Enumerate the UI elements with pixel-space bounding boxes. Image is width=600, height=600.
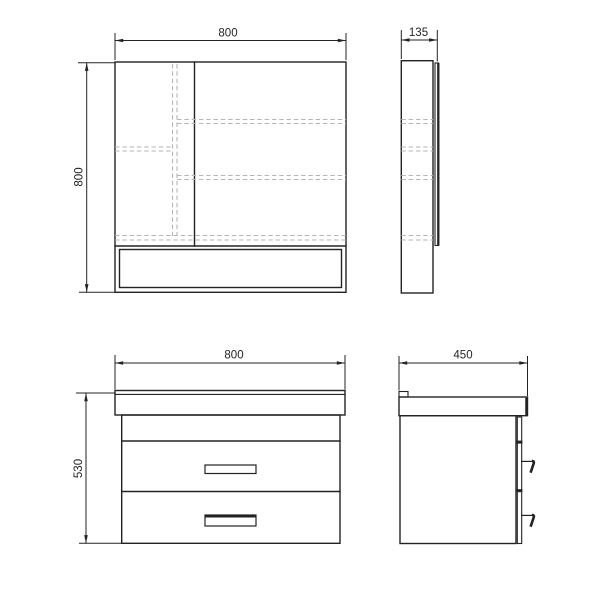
vanity-front-view: 800 530 [73, 350, 345, 544]
vanity-side-body-outline [400, 416, 516, 544]
drawer-front-strip [517, 417, 521, 544]
mirror-cabinet-front-view: 800 800 [74, 28, 347, 293]
vanity-depth-label: 450 [453, 350, 472, 362]
drawer-joint-mark [517, 441, 523, 444]
mirror-width-dimension: 800 [115, 28, 346, 61]
drawer-handle-top [205, 465, 256, 474]
mirror-width-label: 800 [218, 28, 237, 40]
vanity-height-dimension: 530 [73, 393, 121, 543]
cabinet-technical-drawing: 800 800 135 [0, 0, 600, 600]
open-shelf-niche [120, 250, 342, 288]
handle-hook [531, 515, 534, 527]
handle-hook [531, 461, 534, 473]
vanity-body-outline [122, 415, 340, 543]
drawing-svg: 800 800 135 [0, 0, 600, 600]
side-handle-bottom [522, 515, 534, 527]
side-handle-top [522, 461, 534, 473]
mirror-cabinet-side-view: 135 [401, 27, 438, 293]
countertop-side [399, 397, 528, 416]
vanity-width-label: 800 [224, 350, 243, 362]
vanity-side-view: 450 [399, 350, 534, 544]
mirror-cabinet-outline [115, 62, 346, 292]
mirror-height-label: 800 [74, 167, 86, 186]
mirror-depth-label: 135 [409, 27, 428, 39]
vanity-depth-dimension: 450 [399, 350, 528, 397]
mirror-depth-dimension: 135 [401, 27, 437, 62]
mirror-side-body-outline [401, 61, 433, 293]
countertop-back-lip [399, 392, 408, 398]
vanity-height-label: 530 [73, 459, 85, 478]
vanity-width-dimension: 800 [115, 350, 345, 390]
mirror-height-dimension: 800 [74, 63, 116, 293]
drawer-joint-mark [517, 489, 523, 492]
